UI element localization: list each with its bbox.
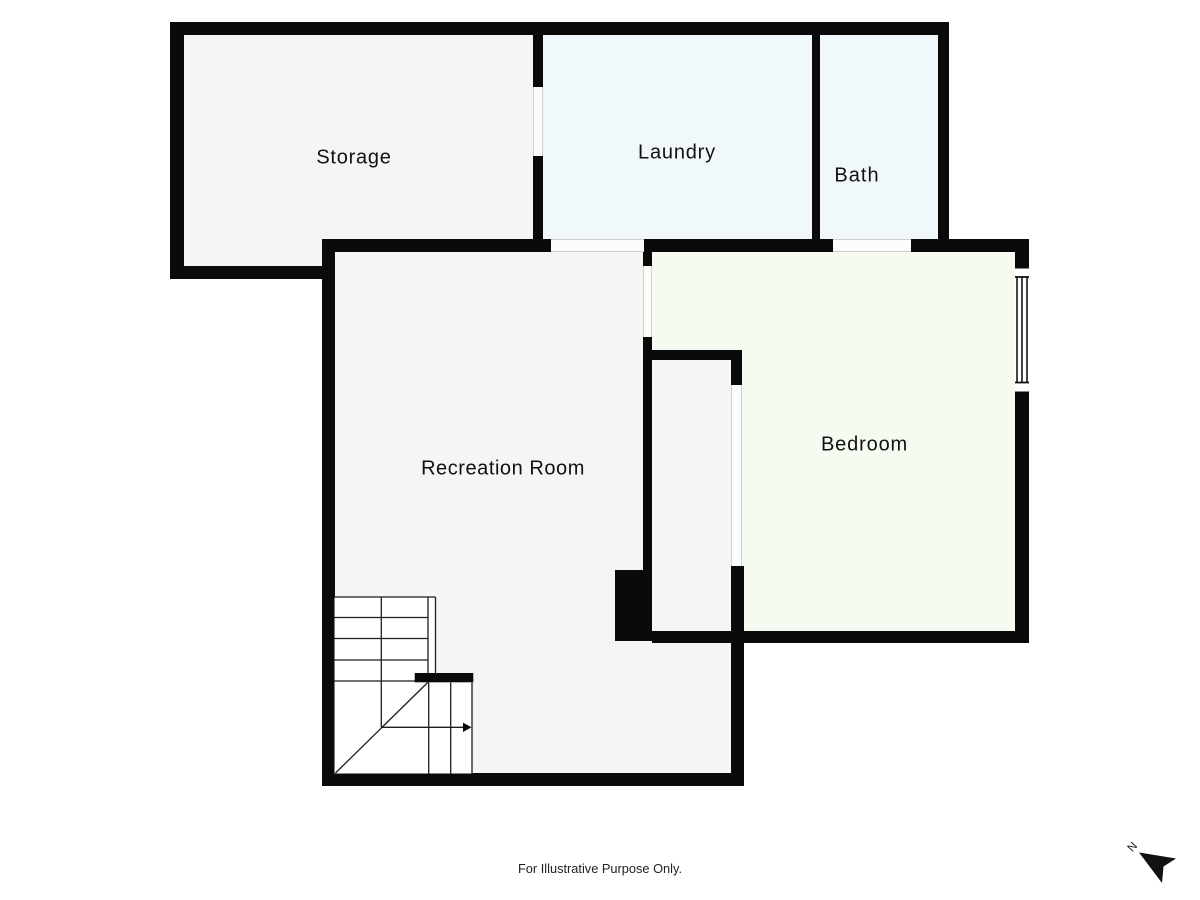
- svg-text:N: N: [1126, 840, 1140, 854]
